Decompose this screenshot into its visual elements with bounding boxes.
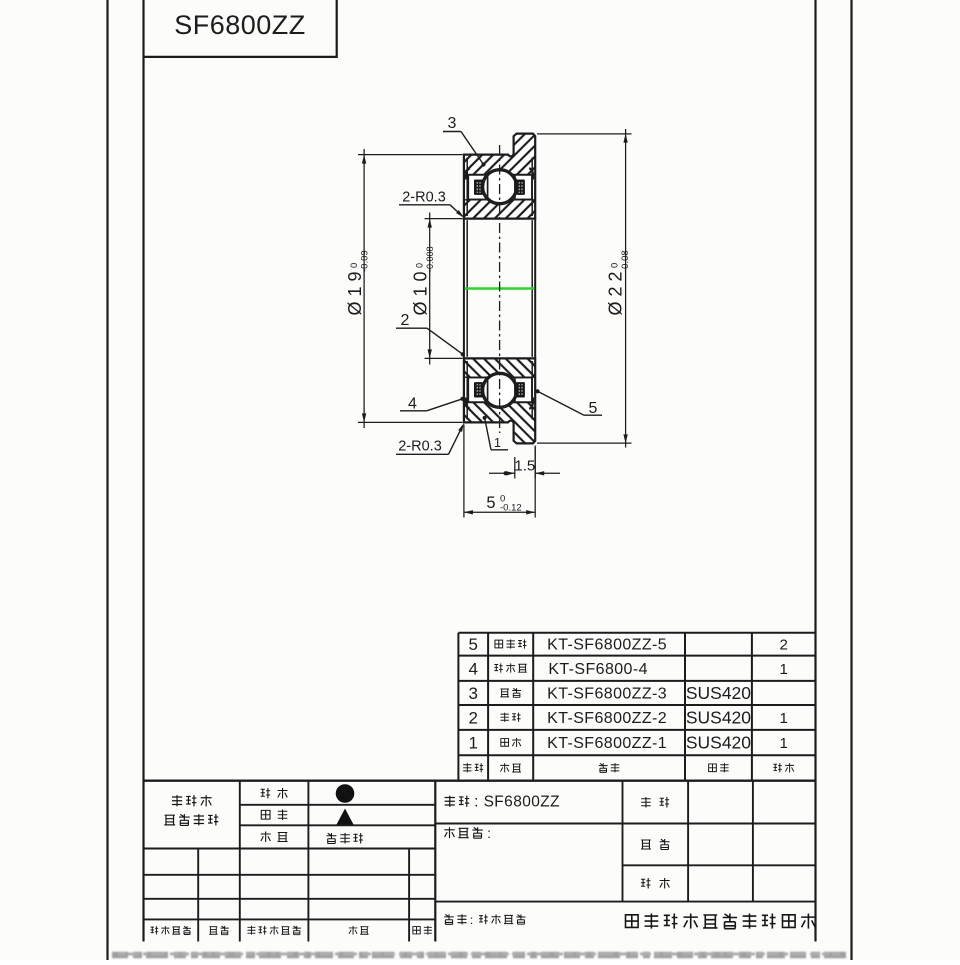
svg-text:1: 1 [780, 735, 788, 752]
svg-text:2: 2 [780, 637, 788, 654]
svg-text:0: 0 [610, 263, 621, 268]
svg-text:1.5: 1.5 [514, 458, 535, 475]
svg-text:-0.12: -0.12 [500, 503, 522, 514]
svg-text:SUS420: SUS420 [686, 683, 751, 703]
svg-text:-0.09: -0.09 [360, 250, 371, 272]
svg-text:KT-SF6800ZZ-2: KT-SF6800ZZ-2 [547, 710, 667, 727]
svg-text:SF6800ZZ: SF6800ZZ [174, 10, 306, 40]
svg-text:3: 3 [448, 115, 457, 132]
svg-text:1: 1 [469, 734, 478, 753]
svg-text:KT-SF6800-4: KT-SF6800-4 [548, 661, 648, 678]
svg-text:4: 4 [408, 396, 417, 413]
svg-text:SUS420: SUS420 [686, 707, 751, 727]
svg-text::: : [487, 825, 491, 841]
svg-text:1: 1 [780, 710, 788, 727]
svg-text:KT-SF6800ZZ-3: KT-SF6800ZZ-3 [547, 685, 667, 702]
svg-text:Ø19: Ø19 [345, 266, 365, 315]
svg-text:1: 1 [780, 661, 788, 678]
svg-text:: SF6800ZZ: : SF6800ZZ [474, 794, 560, 811]
svg-text:5: 5 [486, 494, 495, 512]
svg-text:Ø22: Ø22 [606, 266, 626, 315]
svg-text:2-R0.3: 2-R0.3 [402, 190, 446, 206]
svg-text:4: 4 [469, 659, 478, 678]
svg-text:5: 5 [469, 635, 478, 654]
svg-text:0: 0 [349, 263, 360, 268]
svg-text:SUS420: SUS420 [686, 733, 751, 753]
svg-text:1: 1 [494, 436, 501, 450]
svg-text:KT-SF6800ZZ-1: KT-SF6800ZZ-1 [547, 735, 667, 752]
svg-text:2: 2 [401, 312, 410, 329]
svg-text:Ø10: Ø10 [411, 266, 431, 315]
svg-text:0: 0 [415, 263, 425, 268]
svg-text:5: 5 [589, 400, 598, 417]
svg-text:-0.08: -0.08 [620, 250, 631, 272]
svg-text::: : [470, 913, 473, 927]
svg-text:KT-SF6800ZZ-5: KT-SF6800ZZ-5 [547, 637, 667, 654]
svg-text:2-R0.3: 2-R0.3 [398, 439, 442, 455]
svg-text:3: 3 [469, 684, 478, 703]
svg-text:2: 2 [469, 708, 478, 727]
svg-text:-0.008: -0.008 [425, 246, 435, 272]
